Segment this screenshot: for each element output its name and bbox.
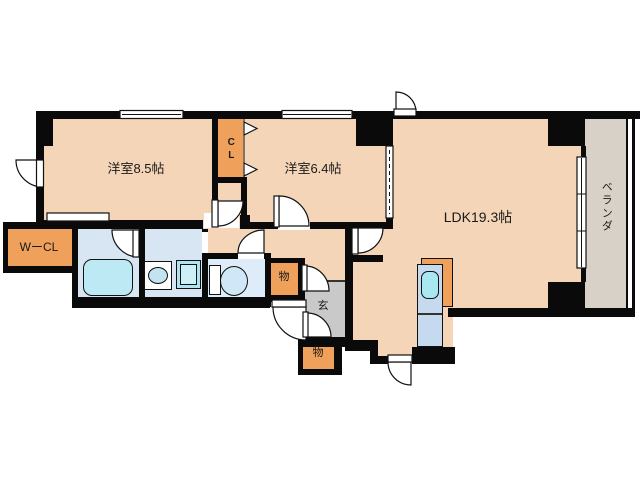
- wall-protrusion-top-left: [345, 340, 378, 351]
- washbasin-icon: [148, 267, 168, 284]
- storage-upper-label: 物: [274, 272, 294, 284]
- floor-plan: 洋室8.5帖 洋室6.4帖 LDK19.3帖 CL WーCL ベランダ 玄 物 …: [0, 0, 640, 480]
- storage-lower-label: 物: [308, 348, 328, 360]
- floor-corridor-genkan: [300, 262, 348, 282]
- veranda-label: ベランダ: [596, 170, 615, 244]
- wall-sliding-below: [386, 218, 393, 229]
- wall-wash-toilet: [202, 229, 208, 300]
- pillar-ldk-bottom-right: [548, 282, 585, 308]
- wall-under-kitchen: [412, 347, 455, 364]
- ldk-label: LDK19.3帖: [408, 210, 548, 225]
- veranda-edge-line: [626, 119, 628, 309]
- wall-storageu-right: [298, 258, 305, 302]
- wall-toilet-top: [202, 253, 265, 259]
- wall-room85-vestibule: [212, 119, 218, 200]
- genkan-label: 玄: [313, 301, 333, 313]
- pillar-room64-ldk: [356, 119, 393, 146]
- cl-label: CL: [221, 126, 240, 174]
- genkan-step-line: [303, 280, 348, 282]
- wcl-label: WーCL: [8, 241, 70, 254]
- wall-ldk-veranda-down: [581, 268, 586, 282]
- door-swing-entrance: [273, 307, 306, 340]
- toilet-icon: [220, 266, 248, 296]
- wall-top: [36, 111, 640, 119]
- wall-bath-left: [72, 222, 78, 308]
- wall-cl-bottom: [212, 177, 243, 183]
- wall-corridor-ldk-upper: [345, 222, 353, 255]
- room64-label: 洋室6.4帖: [253, 162, 373, 176]
- pillar-ldk-top-right: [548, 119, 585, 146]
- pillar-top-left: [37, 112, 53, 146]
- floor-protrusion-a: [352, 316, 378, 343]
- wall-ldk-bottom: [448, 308, 634, 317]
- wall-protrusion-bottom-left: [370, 356, 388, 364]
- door-swing-service: [388, 362, 411, 385]
- wall-bath-bottom: [72, 297, 270, 308]
- kitchen-sink-icon: [421, 271, 439, 299]
- veranda-outer-rail: [632, 111, 635, 317]
- wall-bath-top: [72, 222, 203, 229]
- wall-ldk-veranda-up: [581, 146, 586, 158]
- wall-wcl-top: [3, 222, 72, 229]
- wall-ldk-door-stub: [353, 255, 383, 262]
- wall-wcl-bottom: [3, 266, 78, 273]
- washing-machine-inner: [180, 264, 197, 285]
- room85-label: 洋室8.5帖: [76, 162, 196, 176]
- door-swing-top-ext: [396, 92, 416, 112]
- wall-porch-left: [255, 300, 271, 307]
- bathtub-icon: [83, 259, 133, 296]
- kitchen-unit-divider: [418, 313, 442, 315]
- wall-corridor-ldk-lower: [345, 255, 353, 347]
- wall-room64-bottom: [243, 222, 352, 229]
- wall-genkan-bottom: [298, 337, 345, 347]
